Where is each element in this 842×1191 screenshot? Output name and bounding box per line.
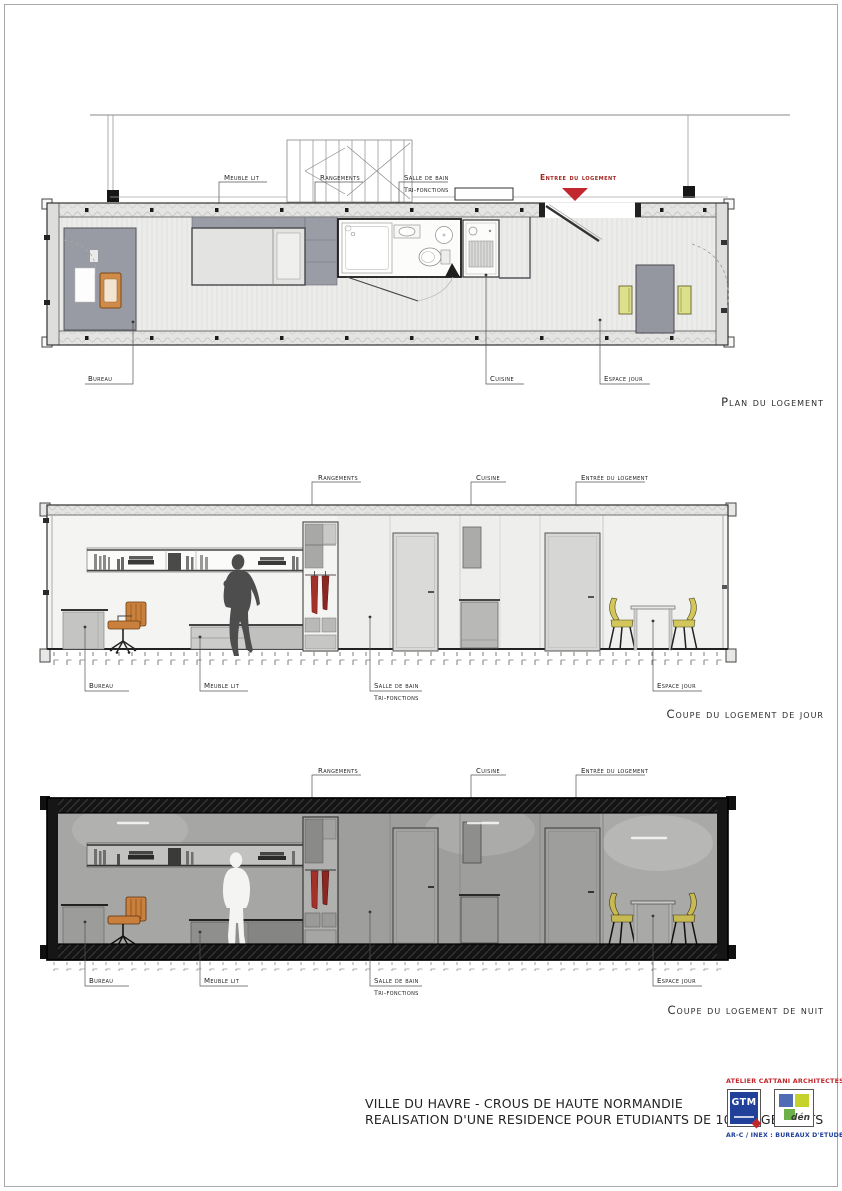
- label-espace-jour: Espace jour: [657, 977, 696, 985]
- bed-bench-night: [189, 920, 306, 944]
- wall-bottom: [47, 331, 728, 345]
- kitchen-appliance: [469, 241, 493, 267]
- label-tri-fonctions: Tri-fonctions: [373, 989, 419, 997]
- label-entree-du-logement: Entrée du logement: [581, 767, 649, 775]
- bathroom-door-night: [393, 828, 438, 946]
- hanging-clothes: [311, 576, 318, 614]
- plan-title: Plan du logement: [721, 395, 824, 409]
- label-entree-du-logement: Entrée du logement: [581, 474, 649, 482]
- label-espace-jour: Espace jour: [657, 682, 696, 690]
- lower-cabinet: [461, 602, 498, 648]
- desk-night: [61, 905, 108, 944]
- hanging-clothes: [311, 871, 318, 909]
- undercarriage: [47, 652, 728, 665]
- gtm-logo-red-mark: [752, 1119, 762, 1129]
- toilet-plan: [419, 248, 441, 266]
- dining-table: [631, 606, 675, 609]
- legend-box: [455, 188, 513, 200]
- staircase-plan: [287, 140, 412, 202]
- section-night: Rangements Cuisine Entrée du logement: [40, 767, 824, 1017]
- entrance-arrow-icon: [562, 188, 588, 201]
- wall-right: [716, 203, 728, 345]
- label-cuisine: Cuisine: [476, 474, 500, 482]
- rangements-plan: [305, 217, 337, 285]
- label-rangements: Rangements: [318, 474, 358, 482]
- label-meuble-lit: Meuble lit: [204, 682, 240, 690]
- label-rangements: Rangements: [318, 767, 358, 775]
- door-jamb: [539, 203, 545, 217]
- desk-day: [61, 610, 108, 649]
- label-tri-fonctions: Tri-fonctions: [403, 186, 449, 194]
- entrance-door-day: [545, 533, 600, 651]
- chair-plan: [678, 286, 691, 314]
- engineers-line: AR-C / INEX : BUREAUX D'ETUDES: [726, 1132, 842, 1139]
- floor-plan: Meuble lit Rangements Salle de bain Tri-…: [42, 115, 824, 409]
- label-entree-du-logement: Entree du logement: [540, 173, 617, 182]
- den-logo-yellow-square: [795, 1094, 809, 1107]
- light-pool: [603, 815, 713, 871]
- label-bureau: Bureau: [89, 977, 113, 985]
- gtm-logo-text: GTM: [730, 1097, 758, 1108]
- label-espace-jour: Espace jour: [604, 375, 643, 383]
- door-jamb: [635, 203, 641, 217]
- gtm-logo-square: GTM: [730, 1092, 758, 1124]
- context-column-left: [107, 190, 119, 202]
- wardrobe-night: [303, 817, 338, 946]
- den-logo-blue-square: [779, 1094, 793, 1107]
- architectural-drawings: Meuble lit Rangements Salle de bain Tri-…: [0, 0, 842, 1191]
- label-salle-de-bain: Salle de bain: [404, 174, 449, 182]
- pillow-plan: [277, 233, 300, 279]
- night-section-title: Coupe du logement de nuit: [667, 1003, 824, 1017]
- roof-band-night: [47, 798, 728, 813]
- entrance-door-night: [545, 828, 600, 946]
- upper-cabinet: [463, 527, 481, 568]
- wall-left: [47, 203, 59, 345]
- label-cuisine: Cuisine: [490, 375, 514, 383]
- label-meuble-lit: Meuble lit: [204, 977, 240, 985]
- label-meuble-lit: Meuble lit: [224, 174, 260, 182]
- wall-shelf-night: [87, 843, 303, 867]
- den-logo-text: dén: [791, 1113, 810, 1123]
- wardrobe-day: [303, 522, 338, 651]
- label-bureau: Bureau: [88, 375, 112, 383]
- architect-name: ATELIER CATTANI ARCHITECTES: [726, 1077, 842, 1085]
- section-day: Rangements Cuisine Entrée du logement: [40, 474, 824, 721]
- den-logo: dén: [774, 1089, 814, 1127]
- floor-band-night: [47, 944, 728, 960]
- drawing-sheet: Meuble lit Rangements Salle de bain Tri-…: [0, 0, 842, 1191]
- bathroom-door-day: [393, 533, 438, 651]
- label-tri-fonctions: Tri-fonctions: [373, 694, 419, 702]
- label-rangements: Rangements: [320, 174, 360, 182]
- gtm-logo: GTM: [727, 1089, 761, 1127]
- context-column-right: [683, 186, 695, 198]
- roof-band: [47, 505, 728, 515]
- undercarriage-night: [47, 962, 728, 971]
- label-bureau: Bureau: [89, 682, 113, 690]
- chair-plan: [619, 286, 632, 314]
- day-section-title: Coupe du logement de jour: [666, 707, 824, 721]
- wall-shelf-day: [87, 548, 303, 572]
- label-salle-de-bain: Salle de bain: [374, 682, 419, 690]
- table-plan: [636, 265, 674, 333]
- label-cuisine: Cuisine: [476, 767, 500, 775]
- day-container: [40, 503, 736, 665]
- night-drawing: [40, 796, 736, 971]
- label-salle-de-bain: Salle de bain: [374, 977, 419, 985]
